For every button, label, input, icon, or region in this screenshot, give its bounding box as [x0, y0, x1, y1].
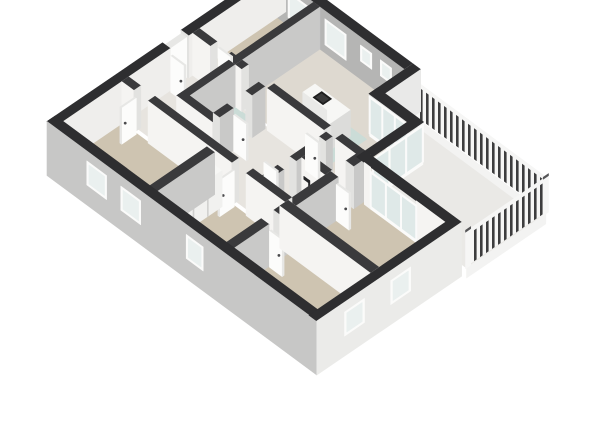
- glass-mullion: [369, 96, 370, 135]
- glass-mullion: [416, 204, 417, 241]
- wc-door-open-end: [318, 142, 320, 179]
- wall-bath-west-e1-face: [252, 87, 265, 138]
- railing-post: [543, 174, 548, 216]
- door-handle: [344, 208, 347, 211]
- glass-mullion: [400, 193, 401, 230]
- door-handle: [124, 122, 127, 125]
- wall-living-south-a-face: [235, 65, 241, 112]
- bedroom-west-door-open-end: [120, 107, 122, 144]
- glass-mullion: [385, 182, 386, 219]
- railing-post: [466, 227, 471, 269]
- door-handle: [313, 157, 316, 160]
- floorplan-canvas: [0, 0, 600, 424]
- door-handle: [242, 138, 245, 141]
- door-handle: [180, 80, 183, 83]
- floorplan-3d-view: [0, 0, 600, 424]
- door-handle: [278, 254, 281, 257]
- glass-mullion: [405, 135, 407, 174]
- bedroom-east-door-open-end: [349, 193, 351, 230]
- glass-mullion: [370, 171, 371, 208]
- glass-mullion: [422, 124, 424, 163]
- glass-mullion: [382, 105, 383, 144]
- bath-west-door-open-end: [246, 124, 248, 161]
